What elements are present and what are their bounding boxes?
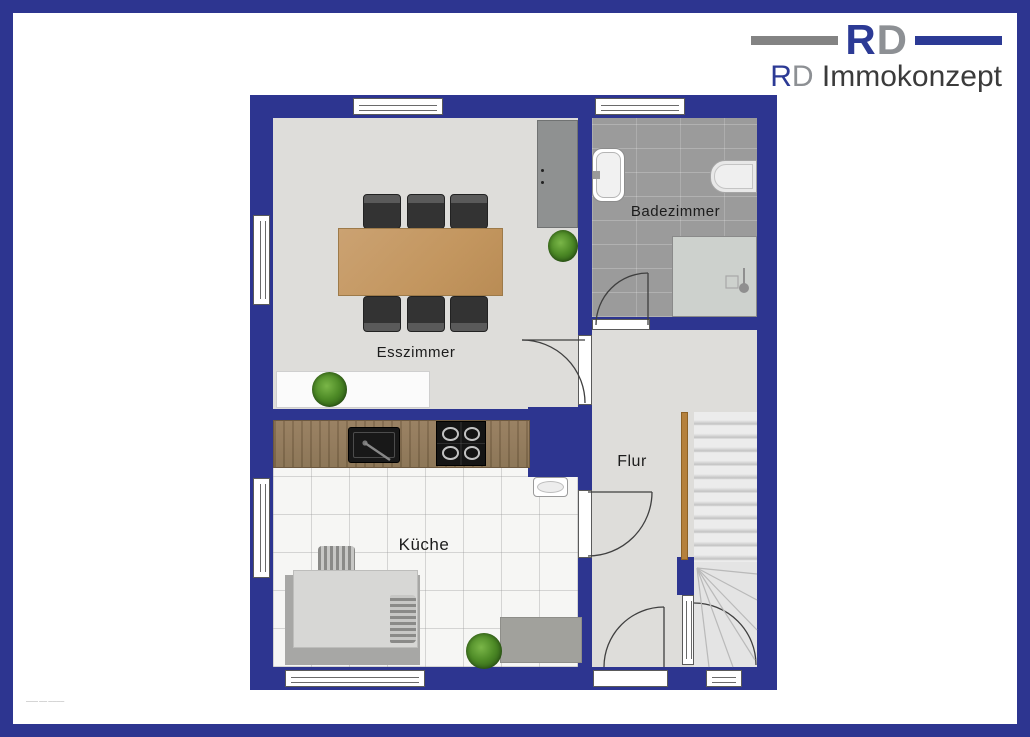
floorplan-page: RD RD Immokonzept xyxy=(0,0,1030,737)
shower-tray xyxy=(672,236,757,317)
window-dining-top xyxy=(353,98,443,115)
dining-shelf xyxy=(276,371,430,408)
staircase-winder-steps xyxy=(694,562,757,667)
plant-icon xyxy=(548,230,578,262)
brand-logo: RD RD Immokonzept xyxy=(732,20,1002,93)
wall-sink-basin xyxy=(537,481,564,493)
window-glass xyxy=(260,221,266,299)
dining-chair xyxy=(407,296,445,332)
doorframe-dining xyxy=(578,335,592,405)
logo-gray-bar xyxy=(751,36,838,45)
room-label-bath: Badezimmer xyxy=(613,203,738,220)
window-glass xyxy=(359,105,437,111)
logo-word-r: R xyxy=(770,60,792,93)
wall-kitchen-corner-block xyxy=(528,407,592,477)
dining-sideboard xyxy=(537,120,578,228)
stair-handrail xyxy=(681,412,688,560)
staircase-straight-flight xyxy=(694,412,757,562)
logo-mark-d: D xyxy=(877,16,908,63)
plant-icon xyxy=(466,633,502,669)
burner-icon xyxy=(442,427,459,441)
dining-table xyxy=(338,228,503,296)
bathroom-sink xyxy=(592,148,625,202)
window-kitchen-bottom xyxy=(285,670,425,687)
dining-chair xyxy=(450,194,488,229)
kitchen-wall-sink xyxy=(533,477,568,497)
wall-left xyxy=(250,95,273,690)
window-glass xyxy=(291,677,419,683)
kitchen-sink-basin xyxy=(353,432,395,458)
logo-wordmark: RD Immokonzept xyxy=(732,60,1002,93)
logo-word-d: D xyxy=(792,60,814,93)
room-label-hall: Flur xyxy=(602,453,662,471)
logo-mark: RD xyxy=(845,19,908,61)
sink-basin xyxy=(596,152,621,198)
logo-word-rest: Immokonzept xyxy=(814,60,1002,93)
dining-chair xyxy=(363,296,401,332)
stair-newel-pillar xyxy=(677,557,694,595)
logo-blue-bar xyxy=(915,36,1002,45)
window-kitchen-left xyxy=(253,478,270,578)
doorframe-bathroom xyxy=(592,319,650,330)
window-stairs-bottom xyxy=(706,670,742,687)
stove-hob xyxy=(436,421,486,466)
window-dining-left xyxy=(253,215,270,305)
sideboard-handle xyxy=(541,181,544,184)
window-glass xyxy=(601,105,679,111)
kitchen-sink xyxy=(348,427,400,463)
burner-icon xyxy=(464,446,481,460)
burner-icon xyxy=(442,446,459,460)
window-glass xyxy=(260,484,266,572)
logo-mark-row: RD xyxy=(732,20,1002,60)
room-label-kitchen: Küche xyxy=(374,535,474,555)
dining-chair xyxy=(363,194,401,229)
window-glass xyxy=(712,677,736,683)
wall-right xyxy=(757,95,777,690)
fineprint-watermark: ——— —— ———— xyxy=(26,698,64,703)
kitchen-counter xyxy=(273,420,530,468)
dining-chair xyxy=(450,296,488,332)
room-label-dining: Esszimmer xyxy=(356,344,476,361)
floorplan: Esszimmer Badezimmer Flur Küche xyxy=(0,0,1030,737)
kitchen-chair xyxy=(318,546,355,573)
bathtub xyxy=(710,160,757,193)
bathtub-inner xyxy=(714,164,753,189)
doorframe-kitchen xyxy=(578,490,592,558)
plant-icon xyxy=(312,372,347,407)
sideboard-handle xyxy=(541,169,544,172)
burner-icon xyxy=(464,427,481,441)
window-bath-top xyxy=(595,98,685,115)
logo-mark-r: R xyxy=(845,16,876,63)
doorframe-entrance xyxy=(593,670,668,687)
dining-chair xyxy=(407,194,445,229)
wall-top xyxy=(250,95,777,118)
window-stair-partition xyxy=(682,595,694,665)
kitchen-chair xyxy=(390,595,416,643)
window-glass xyxy=(686,601,692,659)
floor-mat xyxy=(500,617,582,663)
